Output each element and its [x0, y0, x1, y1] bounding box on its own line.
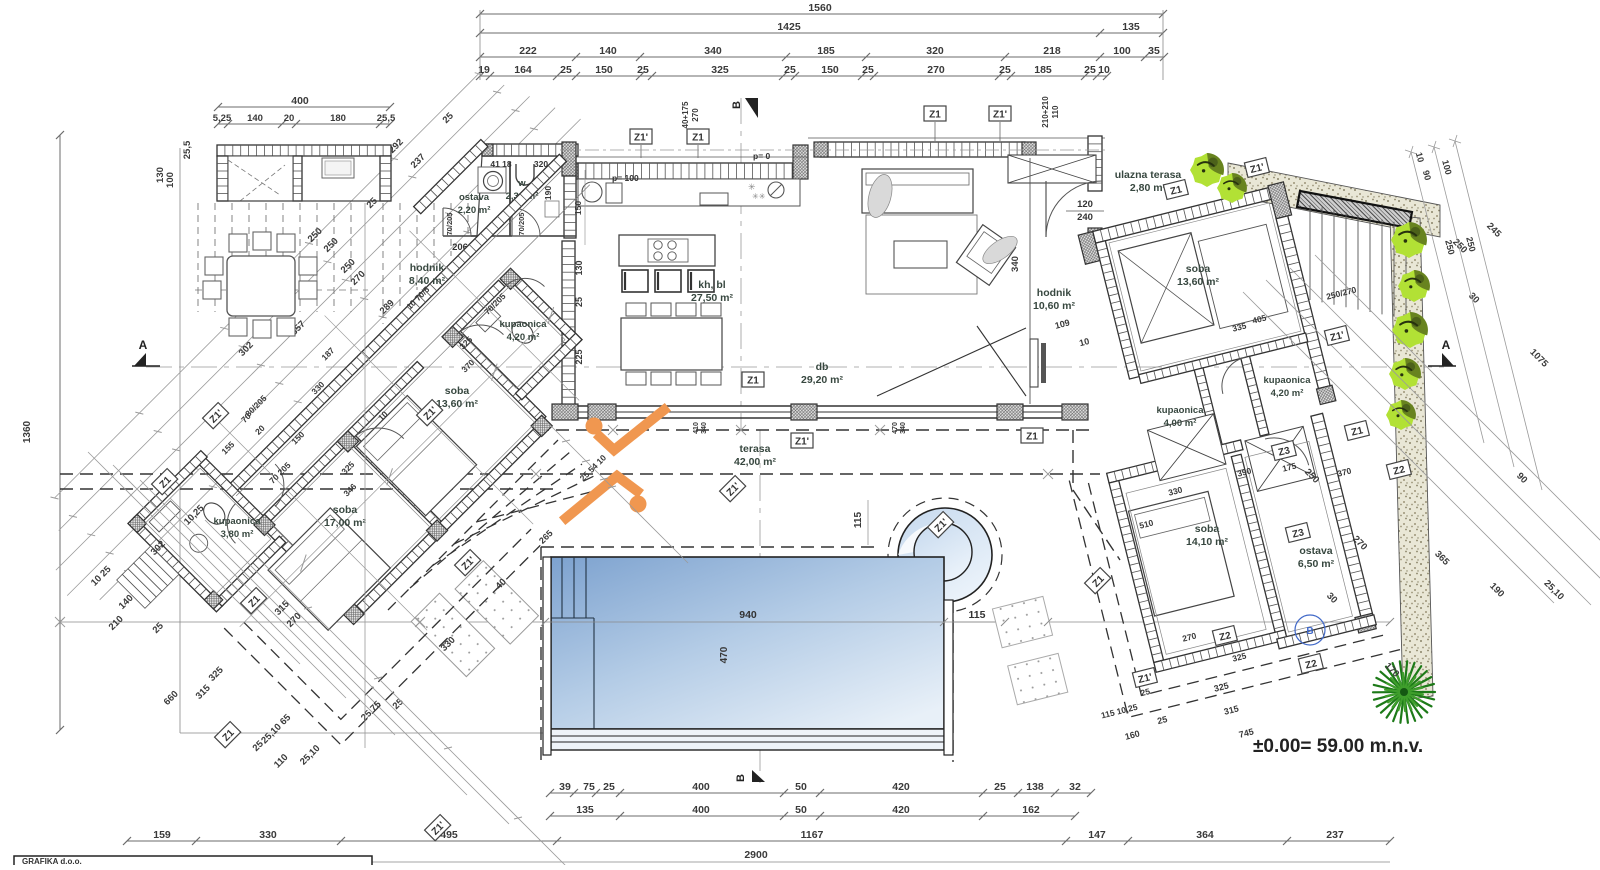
svg-text:50: 50: [795, 781, 807, 793]
svg-text:340: 340: [1010, 256, 1021, 272]
svg-text:270: 270: [691, 108, 700, 122]
svg-text:115: 115: [853, 511, 864, 528]
svg-text:ulazna terasa: ulazna terasa: [1115, 169, 1182, 181]
svg-text:150: 150: [595, 64, 613, 76]
svg-text:25: 25: [862, 64, 874, 76]
svg-text:75: 75: [583, 781, 595, 793]
svg-text:8,40 m²: 8,40 m²: [409, 275, 446, 287]
svg-text:10: 10: [1098, 64, 1110, 76]
svg-text:940: 940: [739, 609, 757, 621]
svg-text:180: 180: [330, 113, 346, 124]
svg-text:soba: soba: [333, 504, 358, 516]
svg-text:±0.00= 59.00 m.n.v.: ±0.00= 59.00 m.n.v.: [1253, 736, 1423, 757]
svg-text:470: 470: [719, 646, 730, 663]
svg-text:320: 320: [926, 45, 944, 57]
svg-text:35: 35: [1148, 45, 1160, 57]
svg-text:✳: ✳: [748, 182, 756, 192]
svg-text:225: 225: [574, 349, 584, 364]
svg-text:14,10 m²: 14,10 m²: [1186, 536, 1229, 548]
svg-text:10,60 m²: 10,60 m²: [1033, 300, 1076, 312]
svg-text:135: 135: [576, 804, 594, 816]
svg-text:1560: 1560: [808, 2, 832, 14]
svg-text:420: 420: [892, 804, 910, 816]
svg-text:237: 237: [1326, 829, 1344, 841]
svg-text:ostava: ostava: [459, 192, 490, 203]
svg-text:db: db: [816, 361, 829, 373]
svg-text:50: 50: [795, 804, 807, 816]
svg-text:210+210: 210+210: [1041, 96, 1050, 128]
svg-text:Z1: Z1: [747, 376, 759, 387]
svg-text:150: 150: [573, 201, 583, 215]
svg-text:25: 25: [784, 64, 796, 76]
svg-text:470: 470: [892, 422, 899, 434]
svg-text:70/205: 70/205: [445, 213, 454, 236]
svg-text:420: 420: [892, 781, 910, 793]
svg-text:p= 100: p= 100: [612, 173, 639, 183]
svg-text:120: 120: [1077, 199, 1093, 210]
svg-text:Z1: Z1: [692, 133, 704, 144]
svg-text:25: 25: [637, 64, 649, 76]
svg-text:Z1': Z1': [795, 437, 809, 448]
svg-text:4,20 m²: 4,20 m²: [1271, 388, 1304, 399]
svg-text:138: 138: [1026, 781, 1044, 793]
svg-text:A: A: [1442, 338, 1451, 352]
svg-text:330: 330: [259, 829, 277, 841]
svg-text:20: 20: [284, 113, 295, 124]
svg-text:17,00 m²: 17,00 m²: [324, 517, 367, 529]
svg-text:25: 25: [574, 297, 584, 307]
svg-text:p= 0: p= 0: [753, 151, 771, 161]
svg-text:27,50 m²: 27,50 m²: [691, 292, 734, 304]
svg-text:hodnik: hodnik: [410, 262, 445, 274]
svg-text:A: A: [139, 338, 148, 352]
svg-text:25: 25: [1084, 64, 1096, 76]
svg-text:2,20 m²: 2,20 m²: [458, 205, 491, 216]
svg-text:3,80 m²: 3,80 m²: [221, 529, 254, 540]
svg-text:147: 147: [1088, 829, 1106, 841]
svg-text:✳✳: ✳✳: [752, 192, 766, 201]
svg-text:1360: 1360: [22, 420, 33, 443]
svg-text:B: B: [1306, 626, 1313, 637]
svg-text:1425: 1425: [777, 21, 801, 33]
svg-text:Z1': Z1': [634, 133, 648, 144]
svg-text:325: 325: [711, 64, 729, 76]
svg-text:kh, bl: kh, bl: [698, 279, 726, 291]
svg-text:ostava: ostava: [1299, 545, 1332, 557]
svg-text:kupaonica: kupaonica: [500, 319, 548, 330]
svg-text:B: B: [735, 774, 747, 782]
svg-text:6,50 m²: 6,50 m²: [1298, 558, 1335, 570]
svg-text:B: B: [731, 101, 743, 109]
svg-text:162: 162: [1022, 804, 1040, 816]
svg-text:13,60 m²: 13,60 m²: [436, 398, 479, 410]
svg-text:25: 25: [994, 781, 1006, 793]
svg-text:Z1: Z1: [1026, 432, 1038, 443]
svg-text:2,80 m²: 2,80 m²: [1130, 182, 1167, 194]
svg-text:218: 218: [1043, 45, 1061, 57]
svg-text:410: 410: [693, 422, 700, 434]
svg-text:41 18: 41 18: [490, 159, 512, 169]
svg-text:159: 159: [153, 829, 171, 841]
svg-text:185: 185: [817, 45, 835, 57]
svg-text:hodnik: hodnik: [1037, 287, 1072, 299]
svg-text:kupaonica: kupaonica: [1264, 375, 1312, 386]
svg-text:400: 400: [692, 781, 710, 793]
svg-text:GRAFIKA d.o.o.: GRAFIKA d.o.o.: [22, 857, 82, 865]
svg-text:kupaonica: kupaonica: [1157, 405, 1205, 416]
svg-text:100: 100: [1113, 45, 1131, 57]
svg-text:70/205: 70/205: [517, 213, 526, 236]
svg-text:400: 400: [692, 804, 710, 816]
svg-text:150: 150: [821, 64, 839, 76]
svg-text:400: 400: [291, 95, 309, 107]
svg-text:1167: 1167: [801, 829, 824, 841]
svg-text:4,20 m²: 4,20 m²: [507, 332, 540, 343]
svg-text:270: 270: [927, 64, 945, 76]
svg-text:2900: 2900: [744, 849, 768, 861]
svg-text:40+175: 40+175: [681, 101, 690, 128]
svg-text:25: 25: [560, 64, 572, 76]
svg-text:5,25: 5,25: [213, 113, 232, 124]
svg-text:25,5: 25,5: [377, 113, 396, 124]
svg-text:25,5: 25,5: [182, 140, 193, 159]
svg-text:4,00 m²: 4,00 m²: [1164, 418, 1197, 429]
svg-text:222: 222: [519, 45, 537, 57]
svg-text:185: 185: [1034, 64, 1052, 76]
svg-text:soba: soba: [1195, 523, 1220, 535]
svg-text:soba: soba: [1186, 263, 1211, 275]
svg-text:soba: soba: [445, 385, 470, 397]
svg-text:Z1: Z1: [929, 110, 941, 121]
svg-text:115: 115: [969, 609, 986, 621]
svg-text:135: 135: [1122, 21, 1140, 33]
svg-text:240: 240: [1077, 212, 1093, 223]
svg-text:100: 100: [165, 172, 176, 188]
svg-text:140: 140: [247, 113, 263, 124]
svg-text:13,60 m²: 13,60 m²: [1177, 276, 1220, 288]
svg-text:32: 32: [1069, 781, 1081, 793]
svg-text:25: 25: [603, 781, 615, 793]
svg-text:130: 130: [574, 260, 584, 275]
svg-text:25: 25: [999, 64, 1011, 76]
svg-text:110: 110: [1051, 105, 1060, 118]
svg-text:164: 164: [514, 64, 532, 76]
svg-text:42,00 m²: 42,00 m²: [734, 456, 777, 468]
svg-text:340: 340: [704, 45, 722, 57]
svg-text:39: 39: [559, 781, 571, 793]
svg-text:29,20 m²: 29,20 m²: [801, 374, 844, 386]
svg-text:terasa: terasa: [740, 443, 771, 455]
svg-text:340: 340: [701, 422, 708, 434]
svg-text:w: w: [517, 178, 526, 189]
svg-text:kupaonica: kupaonica: [214, 516, 262, 527]
svg-text:364: 364: [1196, 829, 1214, 841]
svg-text:340: 340: [900, 422, 907, 434]
svg-text:Z1': Z1': [993, 110, 1007, 121]
svg-text:140: 140: [599, 45, 617, 57]
